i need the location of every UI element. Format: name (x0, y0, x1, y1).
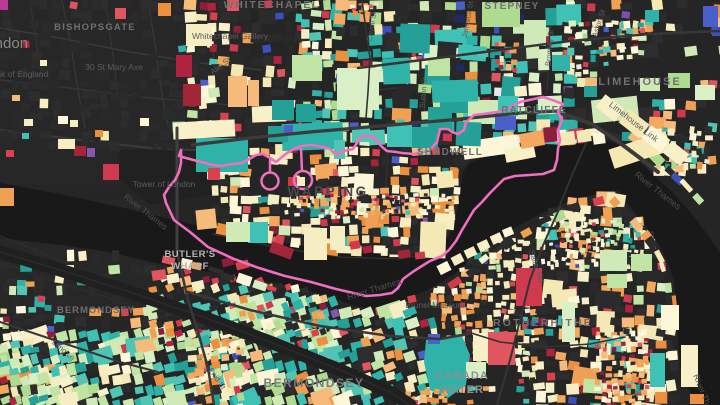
svg-text:BUTLER'S: BUTLER'S (164, 249, 215, 260)
svg-text:CANADA: CANADA (435, 370, 489, 382)
svg-text:ROTHERHITHE: ROTHERHITHE (493, 317, 593, 329)
svg-text:WAPPING: WAPPING (287, 184, 368, 199)
svg-text:Bank of England: Bank of England (0, 69, 49, 79)
svg-text:London: London (0, 35, 28, 52)
svg-text:Tower of London: Tower of London (133, 179, 196, 189)
svg-text:WATER: WATER (440, 384, 484, 396)
svg-text:RATCLIFFE: RATCLIFFE (501, 105, 567, 116)
svg-text:Brunel Museum: Brunel Museum (405, 300, 465, 310)
svg-text:WHARF: WHARF (171, 261, 209, 272)
svg-text:SHADWELL: SHADWELL (417, 147, 483, 158)
svg-text:STEPNEY: STEPNEY (484, 1, 539, 12)
svg-text:Whitechapel Gallery: Whitechapel Gallery (192, 31, 269, 41)
svg-text:30 St Mary Axe: 30 St Mary Axe (85, 62, 143, 72)
svg-text:BERMONDSEY: BERMONDSEY (57, 305, 135, 316)
svg-text:WHITECHAPEL: WHITECHAPEL (224, 0, 321, 11)
svg-text:LIMEHOUSE: LIMEHOUSE (598, 76, 681, 88)
svg-text:BISHOPSGATE: BISHOPSGATE (54, 22, 136, 33)
svg-text:BERMONDSEY: BERMONDSEY (263, 376, 364, 390)
